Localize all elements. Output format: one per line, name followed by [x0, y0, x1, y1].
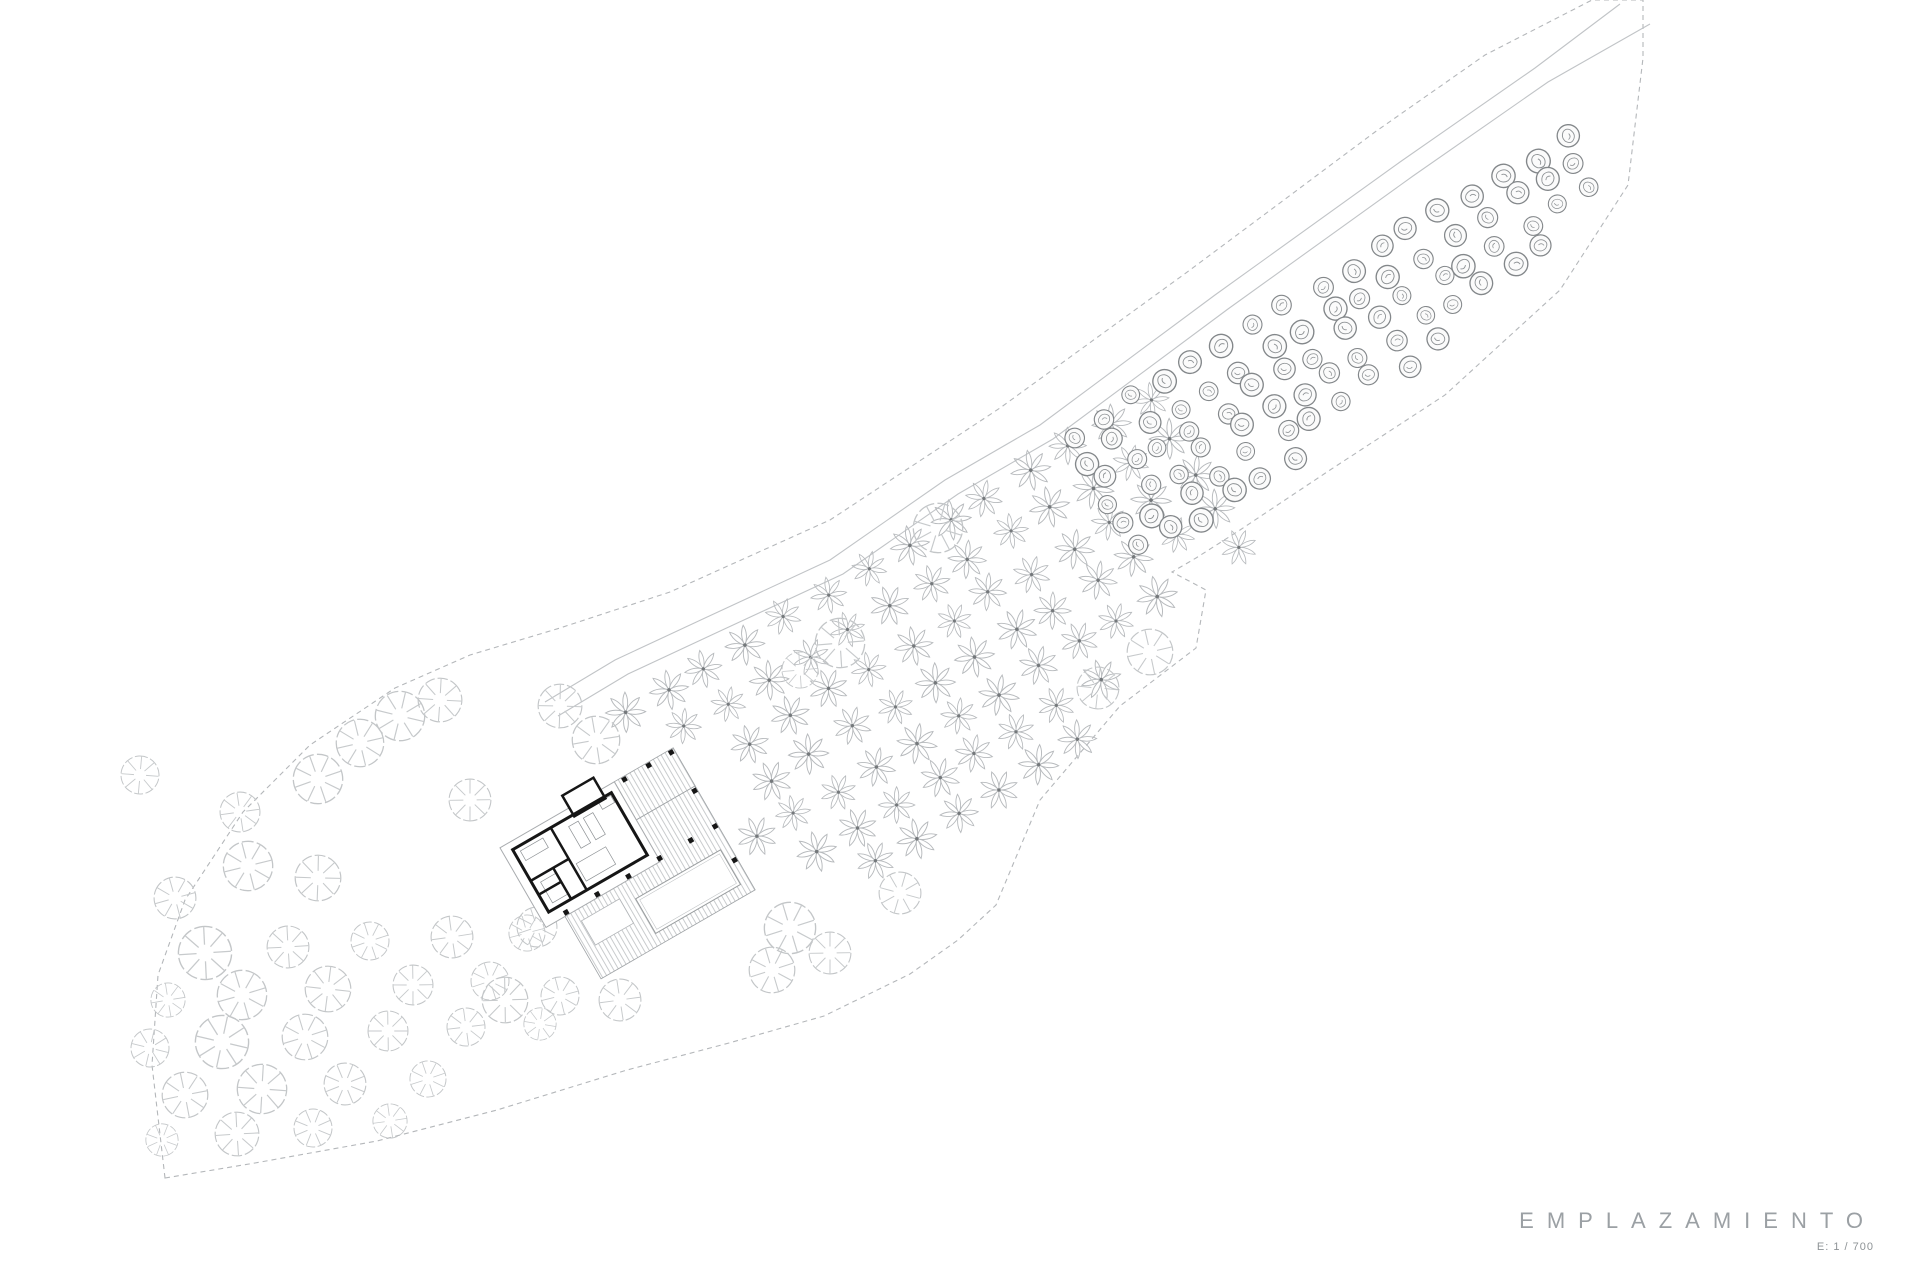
- flower-tree: [991, 511, 1030, 550]
- flower-tree: [952, 732, 996, 776]
- flower-tree: [723, 623, 766, 666]
- flower-tree: [894, 721, 939, 766]
- light-tree: [148, 871, 202, 925]
- dark-tree: [1141, 475, 1161, 495]
- flower-tree: [976, 672, 1023, 719]
- flower-tree: [1034, 592, 1072, 630]
- light-tree: [129, 1027, 171, 1069]
- light-tree: [465, 956, 516, 1007]
- light-tree: [259, 918, 317, 976]
- flower-tree: [1047, 521, 1103, 577]
- flower-tree: [909, 561, 955, 607]
- flower-tree: [1092, 597, 1141, 646]
- flower-tree: [951, 634, 997, 680]
- dark-tree: [1196, 379, 1220, 403]
- access-road-lines: [545, 4, 1650, 716]
- flower-tree: [646, 667, 691, 712]
- flower-tree: [872, 683, 919, 730]
- light-tree: [409, 669, 471, 731]
- dark-tree: [1443, 295, 1463, 315]
- flower-tree: [832, 803, 882, 853]
- dark-tree: [1410, 246, 1437, 273]
- dark-tree: [1126, 532, 1151, 557]
- light-tree: [316, 1055, 373, 1112]
- light-tree: [276, 1008, 334, 1066]
- light-tree: [346, 917, 394, 965]
- flower-tree: [704, 680, 753, 729]
- flower-tree: [1054, 616, 1104, 666]
- flower-tree: [1216, 524, 1263, 571]
- dark-tree: [1392, 285, 1413, 306]
- dark-tree-grid: [1062, 124, 1602, 558]
- dark-tree: [1483, 235, 1506, 258]
- house-floor-plan: [493, 736, 755, 990]
- light-tree: [120, 755, 160, 795]
- dark-tree: [1364, 302, 1395, 333]
- dark-tree: [1268, 291, 1296, 319]
- dark-tree: [1281, 444, 1310, 473]
- flower-tree: [724, 718, 776, 770]
- dark-tree: [1241, 313, 1265, 337]
- flower-tree: [990, 602, 1045, 657]
- light-tree: [535, 971, 585, 1021]
- flower-tree: [845, 544, 894, 593]
- flower-tree: [731, 810, 783, 862]
- light-tree: [424, 909, 481, 966]
- dark-tree: [1422, 195, 1452, 225]
- dark-tree: [1135, 408, 1165, 438]
- flower-tree: [803, 663, 853, 713]
- light-tree: [290, 1105, 336, 1151]
- dark-tree: [1547, 193, 1568, 214]
- light-tree: [216, 834, 280, 898]
- flower-tree: [932, 598, 977, 643]
- light-tree: [742, 940, 803, 1001]
- flower-tree: [1033, 682, 1080, 729]
- light-tree: [806, 929, 853, 976]
- dark-tree: [1286, 316, 1319, 349]
- dark-tree: [1236, 441, 1256, 461]
- flower-tree: [864, 580, 916, 632]
- light-tree: [145, 977, 191, 1023]
- flower-tree: [968, 572, 1008, 612]
- light-tree: [443, 1004, 490, 1051]
- dark-tree: [1474, 204, 1502, 232]
- flower-tree: [854, 744, 899, 789]
- dark-tree: [1460, 184, 1485, 209]
- dark-tree: [1560, 150, 1587, 177]
- dark-tree: [1246, 464, 1275, 493]
- light-tree: [405, 1056, 451, 1102]
- site-plan-drawing: [0, 0, 1920, 1280]
- light-tree: [564, 708, 628, 772]
- flower-tree: [1071, 553, 1125, 607]
- flower-tree: [605, 691, 647, 733]
- flower-tree: [829, 703, 875, 749]
- dark-tree: [1259, 330, 1291, 362]
- light-tree: [193, 1013, 251, 1071]
- flower-tree: [792, 827, 841, 876]
- light-tree: [236, 1063, 289, 1116]
- light-tree: [215, 787, 264, 836]
- flower-tree: [871, 779, 923, 831]
- flower-tree: [758, 592, 808, 642]
- flower-tree: [974, 765, 1024, 815]
- flower-tree: [851, 836, 900, 885]
- dark-tree: [1424, 325, 1452, 353]
- dark-tree: [1329, 389, 1354, 414]
- dark-tree: [1273, 357, 1297, 381]
- drawing-title: EMPLAZAMIENTO: [1519, 1208, 1876, 1234]
- light-tree: [446, 776, 493, 823]
- dark-tree: [1205, 330, 1237, 362]
- flower-tree: [1050, 712, 1105, 767]
- flower-tree: [932, 786, 986, 840]
- dark-tree: [1145, 436, 1168, 459]
- drawing-scale: E: 1 / 700: [1519, 1241, 1874, 1253]
- flower-tree: [893, 815, 941, 863]
- flower-tree: [891, 624, 936, 669]
- flower-tree: [659, 701, 709, 751]
- light-tree: [365, 1008, 410, 1053]
- flower-tree: [1129, 568, 1186, 625]
- dark-tree: [1358, 364, 1379, 385]
- light-tree: [155, 1065, 216, 1126]
- light-tree: [529, 675, 590, 736]
- flower-tree: [1006, 549, 1057, 600]
- flower-tree: [887, 523, 933, 569]
- flower-tree: [1003, 442, 1059, 498]
- flower-tree: [939, 696, 979, 736]
- light-tree: [305, 966, 351, 1012]
- dark-tree: [1340, 257, 1368, 285]
- light-tree: [210, 963, 274, 1027]
- dark-tree: [1169, 398, 1193, 422]
- light-tree: [1076, 666, 1119, 709]
- dark-tree: [1385, 329, 1408, 352]
- flower-tree: [1012, 639, 1065, 692]
- dark-tree: [1530, 235, 1551, 256]
- dark-tree: [1398, 355, 1423, 380]
- dark-tree: [1291, 381, 1319, 409]
- dark-tree: [1259, 390, 1291, 422]
- light-tree: [594, 974, 646, 1026]
- dark-tree: [1576, 174, 1601, 199]
- flower-tree: [992, 707, 1041, 756]
- flower-tree: [1074, 652, 1129, 707]
- flower-tree: [745, 755, 798, 808]
- dark-tree: [1443, 223, 1468, 248]
- flower-tree: [826, 608, 870, 652]
- light-tree: [286, 846, 350, 910]
- dark-tree: [1504, 252, 1528, 276]
- dark-tree: [1368, 231, 1398, 261]
- dark-tree: [1346, 285, 1374, 313]
- flower-tree: [815, 769, 862, 816]
- dark-tree: [1176, 348, 1204, 376]
- light-tree: [1120, 622, 1181, 683]
- dark-tree: [1556, 124, 1580, 148]
- light-tree: [385, 957, 441, 1013]
- dark-tree: [1414, 303, 1439, 328]
- dark-tree: [1393, 217, 1417, 241]
- title-block: EMPLAZAMIENTO E: 1 / 700: [1519, 1208, 1876, 1253]
- flower-tree: [677, 643, 729, 695]
- dark-tree: [1124, 446, 1151, 473]
- flower-tree: [1025, 483, 1073, 531]
- light-tree: [287, 748, 349, 810]
- flower-tree: [766, 691, 815, 740]
- site-plan-sheet: EMPLAZAMIENTO E: 1 / 700: [0, 0, 1920, 1280]
